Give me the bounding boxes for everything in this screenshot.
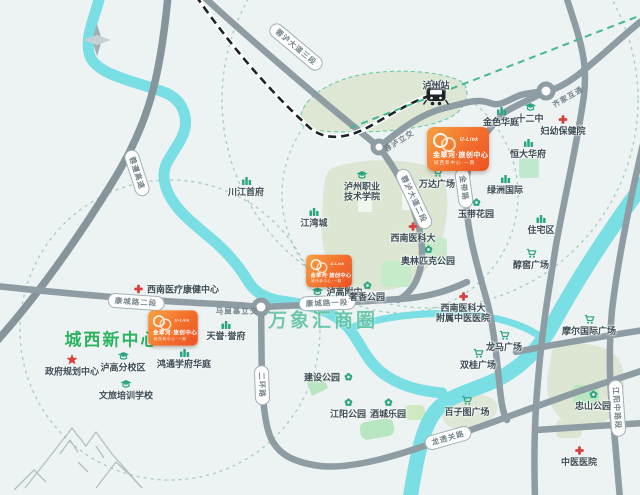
location-map: 泸州站金色华庭十二中妇幼保健院恒大华府绿洲国际玉带花园住宅区万达广场泸州职业技术…	[0, 0, 640, 495]
banner-title: 金翠河·旅创中心	[153, 329, 197, 337]
project-logo-banner-3: U-Link金翠河·旅创中心城西新中心·一期	[148, 310, 198, 345]
project-logo-banner-1: U-Link金翠河·旅创中心城西新中心·一期	[427, 127, 489, 171]
banner-subtitle: 城西新中心·一期	[311, 279, 341, 283]
mountain-sketch	[14, 428, 142, 490]
banner-brand: U-Link	[460, 137, 479, 143]
road-label-capsule: 二环路	[254, 365, 270, 405]
roads	[0, 0, 640, 495]
road-label-plain: 马屋基立交	[216, 306, 259, 317]
banner-brand: U-Link	[175, 318, 190, 323]
banner-brand: U-Link	[330, 262, 344, 266]
banner-subtitle: 城西新中心·一期	[154, 337, 187, 342]
brand-rings-icon	[432, 132, 458, 152]
area-title-chengxi-new-center: 城西新中心	[65, 326, 160, 351]
banner-title: 金翠河·旅创中心	[311, 272, 352, 279]
project-logo-banner-2: U-Link金翠河·旅创中心城西新中心·一期	[306, 255, 352, 288]
map-base-layer	[0, 0, 640, 495]
qijia-interchange-node	[539, 84, 553, 98]
banner-title: 金翠河·旅创中心	[433, 150, 488, 160]
banner-subtitle: 城西新中心·一期	[434, 160, 475, 166]
area-title-wanxianghui-business-circle: 万象汇商圈	[268, 306, 378, 333]
